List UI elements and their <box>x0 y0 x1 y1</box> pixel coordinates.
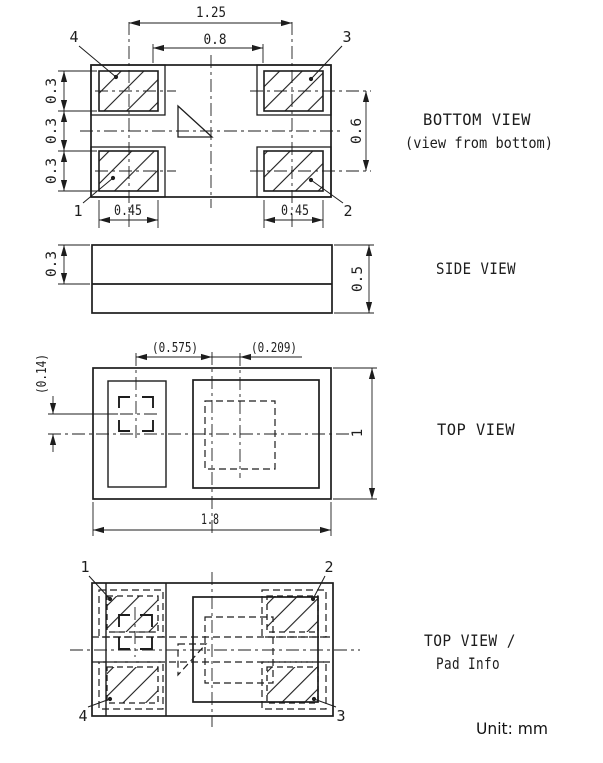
drawing-page: 1.25 0.8 0.3 0.3 0.3 0.6 0.45 0.45 4 3 1… <box>0 0 603 763</box>
leader-pad-4 <box>79 46 116 77</box>
dim-pad-height-bottom: 0.3 <box>44 158 60 184</box>
dim-pad-width-left: 0.45 <box>114 203 142 219</box>
pad-info-label-bottom-right: 3 <box>336 707 345 725</box>
pad-info-pad-4 <box>107 667 158 703</box>
side-view-title: SIDE VIEW <box>436 259 516 278</box>
leader-dot-pad-2 <box>309 178 313 182</box>
top-view: (0.575) (0.209) (0.14) 1 1.8 TOP VIEW <box>35 341 515 537</box>
dim-body-width: 1.8 <box>201 512 219 528</box>
leader-dot-pad-1 <box>111 176 115 180</box>
leader-dot-padinfo-3 <box>312 697 316 701</box>
dim-pad-width-right: 0.45 <box>281 203 309 219</box>
leader-dot-padinfo-1 <box>108 597 112 601</box>
leader-dot-pad-4 <box>114 75 118 79</box>
pad-info-view: 1 2 4 3 TOP VIEW / Pad Info <box>70 558 516 727</box>
top-view-title: TOP VIEW <box>437 420 515 439</box>
pad-info-orientation-mark-triangle <box>178 644 206 675</box>
technical-drawing-canvas: 1.25 0.8 0.3 0.3 0.3 0.6 0.45 0.45 4 3 1… <box>0 0 603 763</box>
bottom-view-pad-label-bottom-left: 1 <box>73 202 82 220</box>
dim-side-top-part: 0.3 <box>44 251 60 277</box>
pad-info-title-line2: Pad Info <box>436 654 500 673</box>
dim-pad-pitch-x: 1.25 <box>196 5 226 21</box>
bottom-view-subtitle: (view from bottom) <box>405 134 553 152</box>
side-view: 0.3 0.5 SIDE VIEW <box>44 245 516 313</box>
orientation-mark-triangle <box>178 106 212 137</box>
leader-dot-pad-3 <box>309 77 313 81</box>
pad-info-pad-1 <box>107 596 158 632</box>
unit-note: Unit: mm <box>476 719 548 738</box>
dim-side-total: 0.5 <box>350 266 366 292</box>
dim-offset-x1: (0.575) <box>152 341 198 356</box>
pad-info-label-top-right: 2 <box>324 558 333 576</box>
bottom-view: 1.25 0.8 0.3 0.3 0.3 0.6 0.45 0.45 4 3 1… <box>44 5 553 228</box>
bottom-view-title: BOTTOM VIEW <box>423 110 531 129</box>
dim-offset-y: (0.14) <box>35 354 50 394</box>
top-view-extension-lines <box>48 368 377 536</box>
pad-info-pad-3 <box>267 667 318 703</box>
dim-pad-gap-y: 0.3 <box>44 118 60 144</box>
pad-info-centerlines <box>70 572 360 727</box>
dim-body-height: 1 <box>350 429 366 437</box>
bottom-view-pad-label-top-right: 3 <box>342 28 351 46</box>
pad-info-title-line1: TOP VIEW / <box>424 631 516 650</box>
bottom-view-pad-label-top-left: 4 <box>69 28 78 46</box>
leader-dot-padinfo-2 <box>311 597 315 601</box>
leader-padinfo-2 <box>313 576 325 599</box>
side-view-extension-lines <box>58 245 374 313</box>
dim-pad-gap-x: 0.8 <box>204 32 227 48</box>
leader-pad-3 <box>311 46 342 79</box>
dim-offset-x2: (0.209) <box>251 341 297 356</box>
dim-pad-height-top: 0.3 <box>44 78 60 104</box>
side-view-body-outline <box>92 245 332 313</box>
pad-info-label-top-left: 1 <box>80 558 89 576</box>
pad-info-label-bottom-left: 4 <box>78 707 87 725</box>
bottom-view-pad-label-bottom-right: 2 <box>343 202 352 220</box>
leader-dot-padinfo-4 <box>108 697 112 701</box>
dim-pad-pitch-y: 0.6 <box>349 118 365 144</box>
pad-info-pad-2 <box>267 596 318 632</box>
